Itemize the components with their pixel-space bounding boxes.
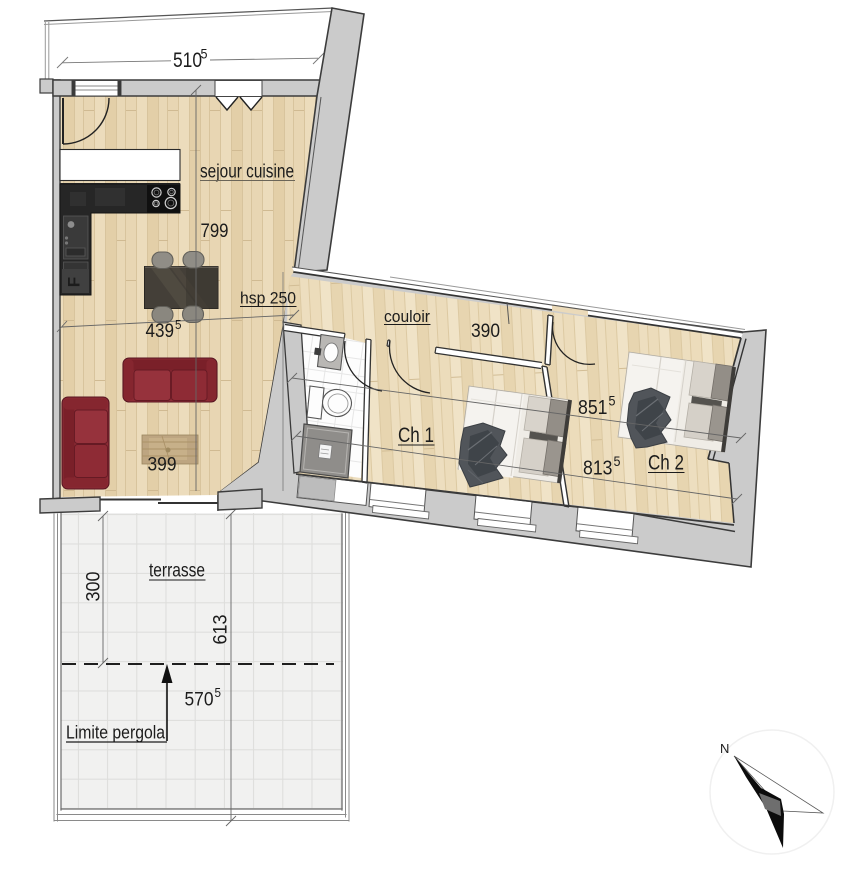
svg-text:439: 439 [146,320,175,342]
svg-text:851: 851 [578,396,608,419]
svg-text:5: 5 [201,46,208,62]
svg-text:5: 5 [175,317,182,332]
svg-text:799: 799 [201,221,229,242]
svg-text:570: 570 [185,689,214,711]
svg-text:terrasse: terrasse [149,561,205,582]
svg-text:Ch 1: Ch 1 [398,424,434,447]
svg-text:5: 5 [215,685,222,700]
svg-text:F: F [64,277,83,287]
svg-text:399: 399 [148,454,177,476]
svg-text:5: 5 [609,394,616,409]
svg-text:613: 613 [210,615,232,645]
svg-text:813: 813 [583,457,613,480]
svg-text:5: 5 [614,454,621,469]
svg-text:N: N [720,741,729,756]
svg-text:couloir: couloir [384,307,430,326]
svg-text:sejour cuisine: sejour cuisine [200,162,294,183]
svg-text:390: 390 [471,321,500,342]
svg-text:510: 510 [173,49,202,72]
svg-text:hsp 250: hsp 250 [240,289,296,308]
svg-text:300: 300 [83,571,105,601]
svg-text:Ch 2: Ch 2 [648,452,684,475]
svg-text:Limite pergola: Limite pergola [66,723,166,743]
